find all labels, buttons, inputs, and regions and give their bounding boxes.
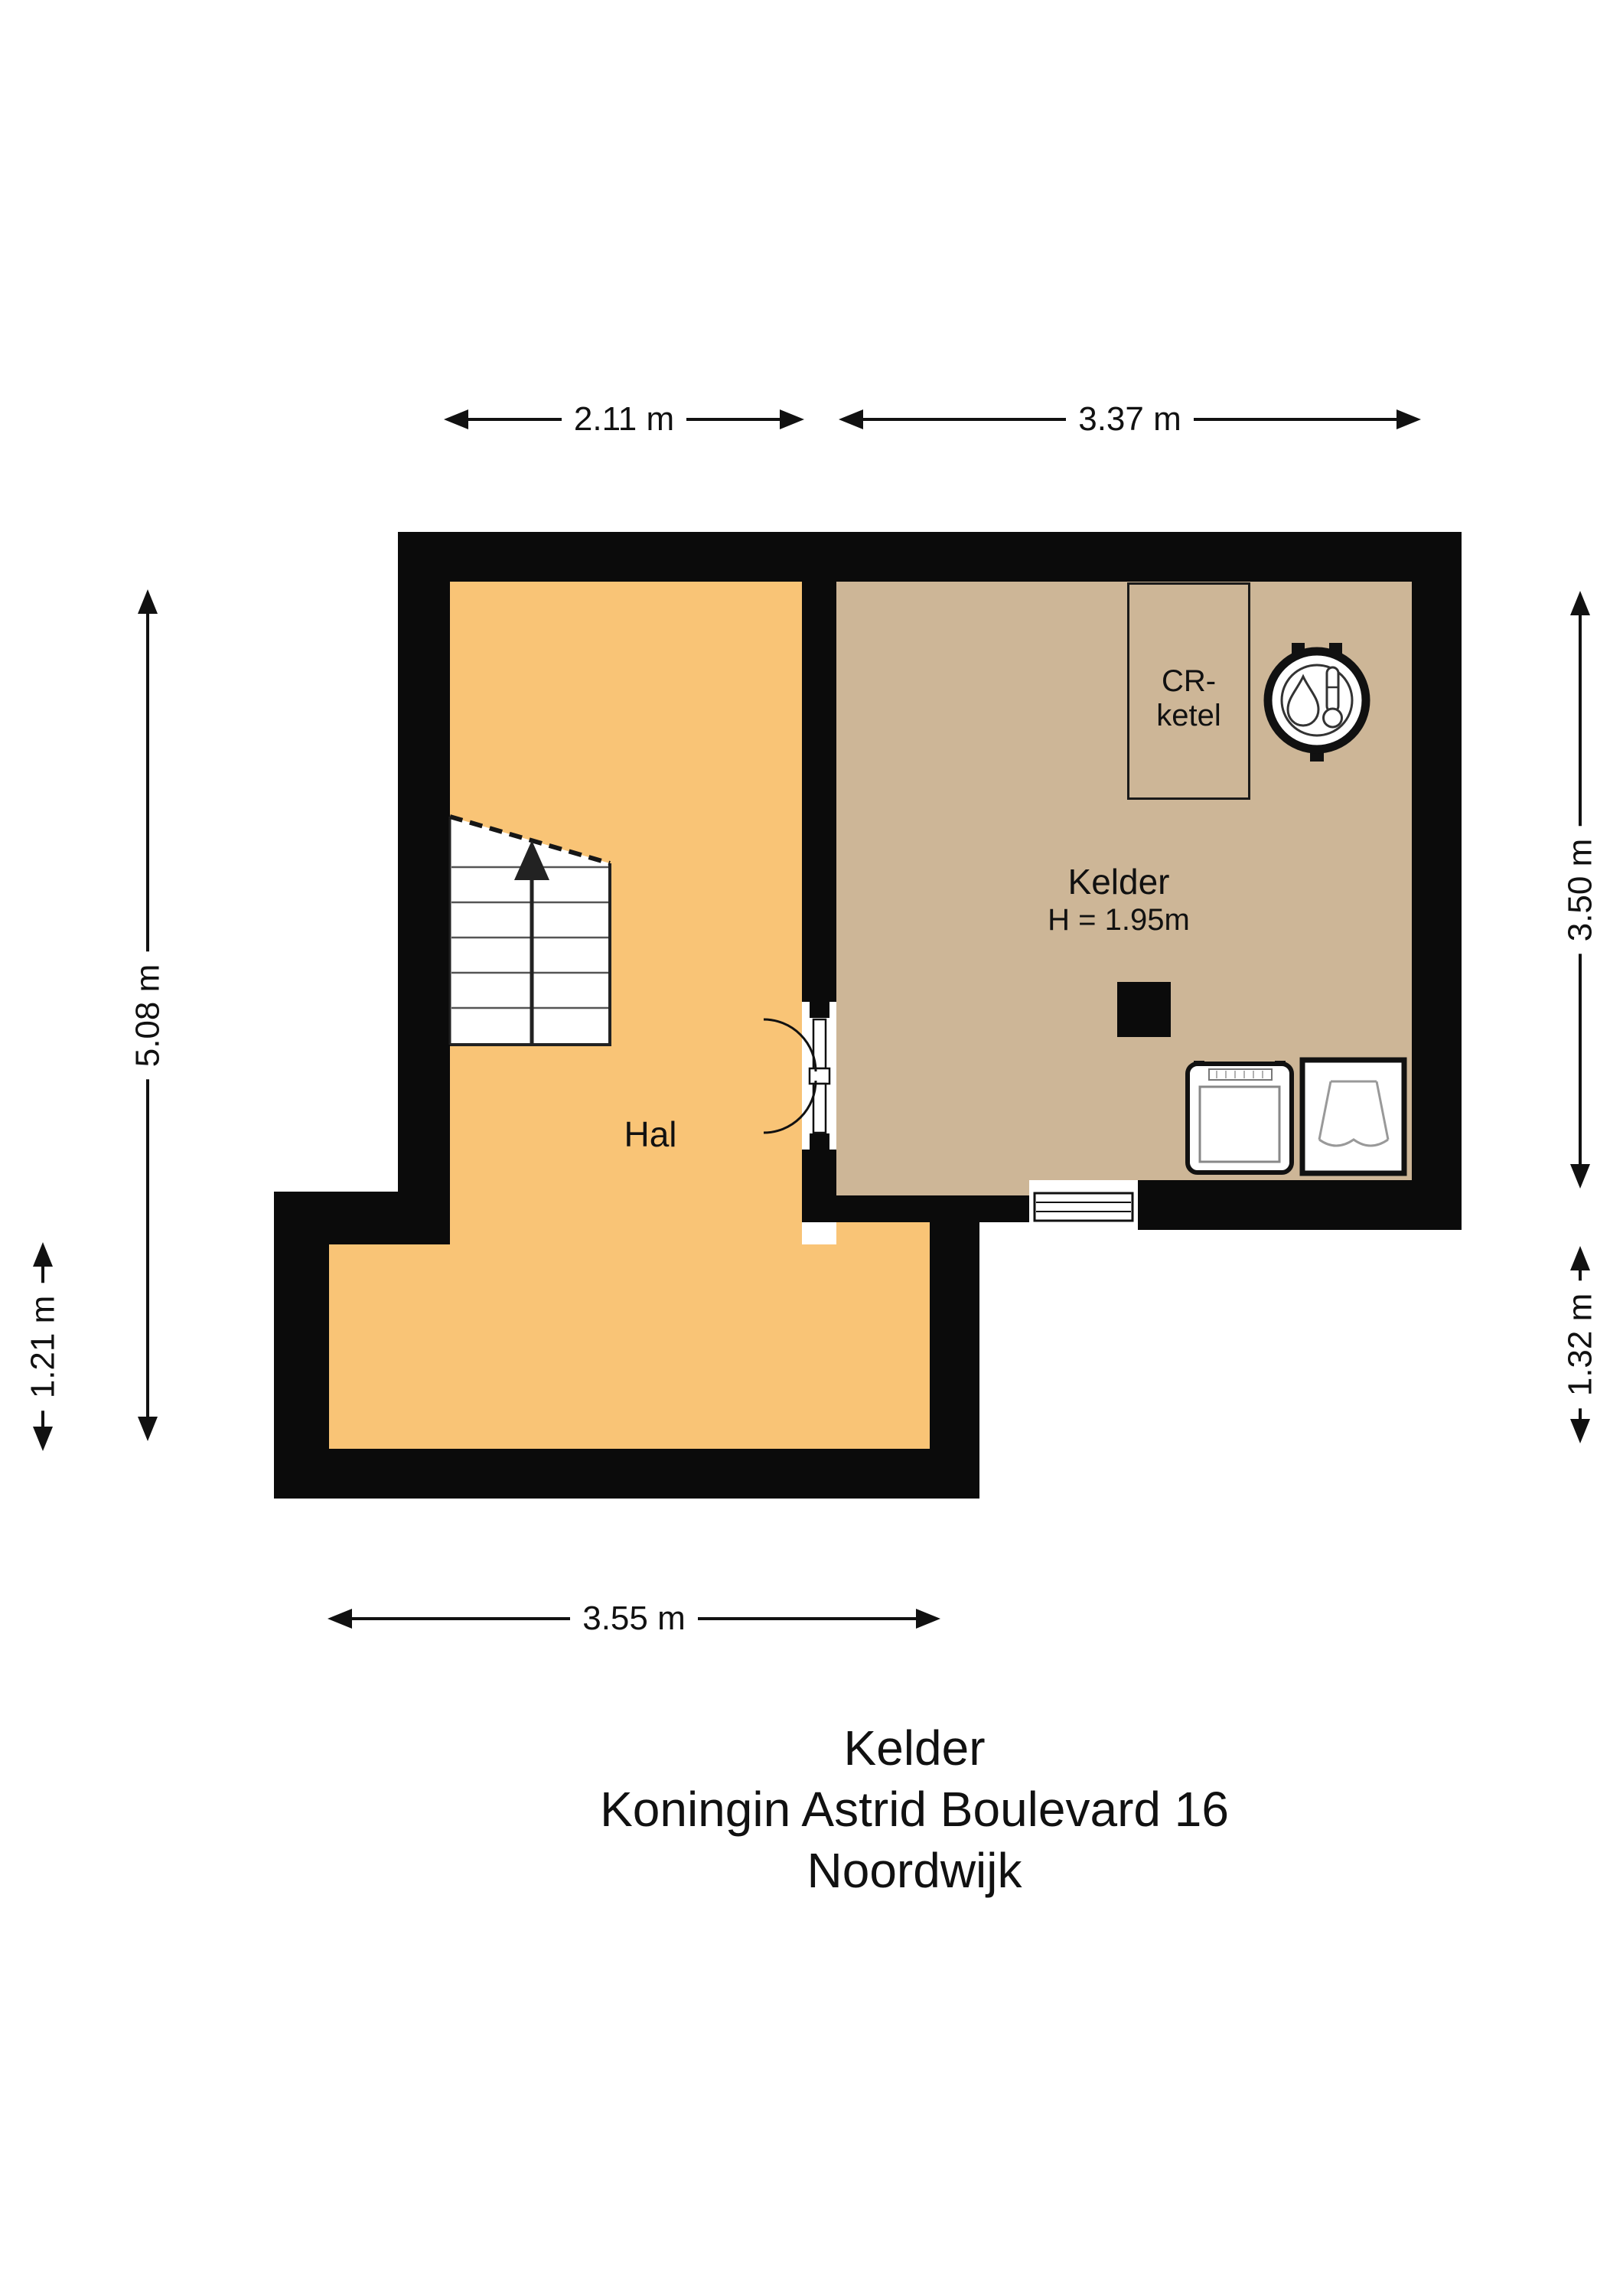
sink-icon	[1302, 1060, 1404, 1173]
arrowhead-up-icon	[1570, 1246, 1590, 1270]
hal-label-block: Hal	[497, 1114, 803, 1154]
dimension-label: 3.50 m	[1562, 826, 1599, 954]
dimension-label: 3.37 m	[1066, 401, 1194, 438]
arrowhead-right-icon	[1396, 409, 1421, 429]
arrowhead-down-icon	[1570, 1419, 1590, 1443]
kelder-height-label: H = 1.95m	[966, 902, 1272, 938]
plan-symbols-layer	[0, 0, 1623, 2296]
dimension-top-hal: 2.11 m	[444, 401, 804, 438]
dimension-label: 1.32 m	[1562, 1281, 1599, 1409]
dimension-top-kelder: 3.37 m	[839, 401, 1421, 438]
dimension-right-kelder-height: 3.50 m	[1562, 591, 1599, 1189]
dimension-left-extension-height: 1.21 m	[24, 1242, 61, 1451]
arrowhead-up-icon	[1570, 591, 1590, 615]
cr-ketel-label-line1: CR-	[1127, 664, 1250, 699]
plan-title-city: Noordwijk	[149, 1840, 1623, 1901]
arrowhead-left-icon	[328, 1609, 352, 1629]
dimension-label: 2.11 m	[562, 401, 686, 438]
floorplan-canvas: Hal Kelder H = 1.95m CR- ketel 2.11 m 3.…	[0, 0, 1623, 2296]
arrowhead-right-icon	[780, 409, 804, 429]
dimension-left-hal-height: 5.08 m	[129, 589, 166, 1441]
cr-ketel-label-block: CR- ketel	[1127, 664, 1250, 733]
stairs	[450, 817, 610, 1045]
kelder-label: Kelder	[966, 862, 1272, 902]
arrowhead-down-icon	[33, 1427, 53, 1451]
boiler-icon	[1268, 643, 1366, 762]
plan-title-block: Kelder Koningin Astrid Boulevard 16 Noor…	[149, 1717, 1623, 1901]
arrowhead-right-icon	[916, 1609, 940, 1629]
arrowhead-up-icon	[33, 1242, 53, 1267]
dimension-bottom-extension: 3.55 m	[328, 1600, 940, 1637]
window-icon	[1035, 1193, 1133, 1221]
washing-machine-icon	[1188, 1061, 1292, 1172]
cr-ketel-label-line2: ketel	[1127, 699, 1250, 733]
arrowhead-up-icon	[138, 589, 158, 614]
plan-title-address: Koningin Astrid Boulevard 16	[149, 1779, 1623, 1840]
dimension-right-lower-height: 1.32 m	[1562, 1246, 1599, 1443]
arrowhead-left-icon	[839, 409, 863, 429]
arrowhead-down-icon	[138, 1417, 158, 1441]
dimension-label: 3.55 m	[570, 1600, 698, 1637]
dimension-label: 5.08 m	[129, 951, 166, 1079]
arrowhead-down-icon	[1570, 1164, 1590, 1189]
thermometer-glyph	[1327, 667, 1338, 712]
dimension-label: 1.21 m	[24, 1283, 61, 1411]
arrowhead-left-icon	[444, 409, 468, 429]
plan-title-floor: Kelder	[149, 1717, 1623, 1779]
kelder-label-block: Kelder H = 1.95m	[966, 862, 1272, 938]
hal-label: Hal	[497, 1114, 803, 1154]
